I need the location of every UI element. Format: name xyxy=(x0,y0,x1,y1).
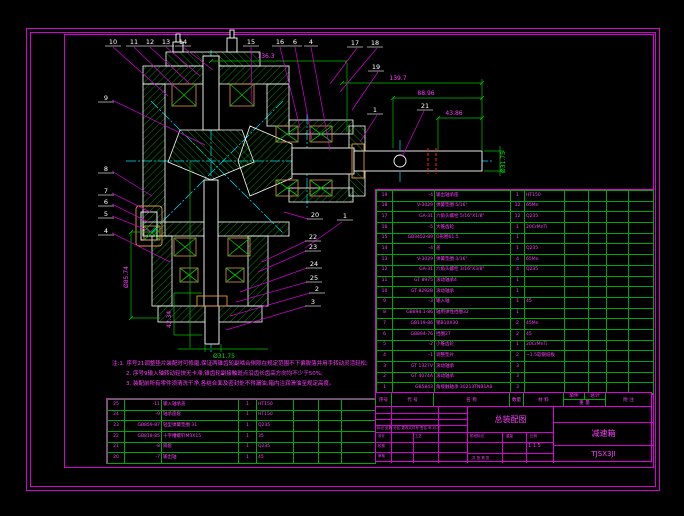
cell-name: O形圈61.5 xyxy=(435,233,511,244)
cell-weight xyxy=(342,432,376,443)
cell-material: 45Mn xyxy=(525,319,565,330)
table-row: 16-5大锥齿轮120CrMnTi xyxy=(377,223,654,234)
cell-material: Q235 xyxy=(525,212,565,223)
cell-note xyxy=(629,297,654,308)
cell-qty: 4 xyxy=(511,265,525,276)
table-row: 5-2小锥齿轮120CrMnTi xyxy=(377,340,654,351)
cell-weight xyxy=(607,191,629,202)
table-row: 10GT 8292B滚动轴承1 xyxy=(377,287,654,298)
callout: 24 xyxy=(310,260,318,268)
cell-no: 12 xyxy=(377,265,393,276)
cell-code: GB818-85 xyxy=(125,432,162,443)
cell-no: 20 xyxy=(108,453,125,464)
cell-name: 滚动轴承 xyxy=(435,372,511,383)
table-row: 14-4盖1Q235 xyxy=(377,244,654,255)
cell-total xyxy=(589,362,607,373)
cell-qty: 1 xyxy=(239,453,257,464)
cell-note xyxy=(629,351,654,362)
cell-total xyxy=(589,308,607,319)
table-row: 12GA-31六角头螺栓 3/16"X3/8"4Q235 xyxy=(377,265,654,276)
cell-qty: 1 xyxy=(511,287,525,298)
table-row: 11GT 8975滚动轴承41 xyxy=(377,276,654,287)
cad-viewport: 136.3 139.7 88.96 43.86 Ø31.75 Ø85.74 42… xyxy=(0,0,684,516)
callout: 15 xyxy=(247,38,255,46)
callout: 2 xyxy=(315,285,319,293)
cell-name: 弹簧垫圈 5/16" xyxy=(435,201,511,212)
cell-total xyxy=(589,191,607,202)
cell-material: 20CrMnTi xyxy=(525,223,565,234)
cell-name: 六角头螺栓 5/16"X1/8" xyxy=(435,212,511,223)
cell-weight xyxy=(607,255,629,266)
cell-code: GT 8975 xyxy=(393,276,435,287)
cell-total xyxy=(589,233,607,244)
cell-qty: 1 xyxy=(239,421,257,432)
table-row: 8GB894.1-86轴用弹性挡圈321 xyxy=(377,308,654,319)
cell-code: -4 xyxy=(393,244,435,255)
cell-unit xyxy=(565,372,589,383)
cell-code: GT 8292B xyxy=(393,287,435,298)
cell-unit xyxy=(565,340,589,351)
cell-material: ~1.5软钢纸板 xyxy=(525,351,565,362)
cell-material xyxy=(525,362,565,373)
cell-name: 轻型弹簧垫圈 31 xyxy=(162,421,239,432)
cell-total xyxy=(589,340,607,351)
cell-qty: 1 xyxy=(511,308,525,319)
cell-no: 21 xyxy=(108,442,125,453)
callout: 20 xyxy=(311,211,319,219)
cell-qty: 1 xyxy=(511,223,525,234)
cell-name: 十字槽螺钉M3X15 xyxy=(162,432,239,443)
cell-total xyxy=(319,453,342,464)
cell-total xyxy=(589,201,607,212)
cell-material: 45 xyxy=(525,329,565,340)
cell-unit xyxy=(294,410,319,421)
cell-unit xyxy=(565,287,589,298)
callout: 14 xyxy=(179,38,187,46)
cell-note xyxy=(629,212,654,223)
cell-qty: 2 xyxy=(511,351,525,362)
table-row: 24-9轴承座套1HT150 xyxy=(108,410,376,421)
dim-shaft-total: 139.7 xyxy=(389,75,406,82)
callout: 22 xyxy=(309,233,317,241)
parts-list-header: 序号 代 号 名 称 数量 材 料 单件 总计 重 量 附 注 xyxy=(375,392,652,407)
cell-note xyxy=(629,233,654,244)
cell-note xyxy=(629,255,654,266)
note-line: 3. 装配前所有零件须清洗干净,各结合面及密封处不得漏油,箱内注润滑油至规定高度… xyxy=(112,379,412,389)
cell-weight xyxy=(607,308,629,319)
cell-code: -8 xyxy=(125,442,162,453)
cell-unit xyxy=(565,201,589,212)
cell-material: 65Mn xyxy=(525,255,565,266)
callout: 6 xyxy=(293,38,297,46)
cell-name: 调整垫片 xyxy=(435,351,511,362)
callout: 8 xyxy=(104,165,108,173)
table-row: 19-4输出轴承座1HT150 xyxy=(377,191,654,202)
weight-label: 重量 xyxy=(506,434,513,439)
cell-unit xyxy=(294,421,319,432)
cell-code: V-3029 xyxy=(393,255,435,266)
cell-qty: 1 xyxy=(511,297,525,308)
cell-name: 输出轴承座 xyxy=(435,191,511,202)
cell-unit xyxy=(294,442,319,453)
cell-name: 滚动轴承 xyxy=(435,287,511,298)
cell-code: -1 xyxy=(393,351,435,362)
cell-material: 20CrMnTi xyxy=(525,340,565,351)
header-name: 名 称 xyxy=(434,393,510,406)
table-row: 7GB119-86销B10X30245Mn xyxy=(377,319,654,330)
cell-total xyxy=(319,421,342,432)
cell-name: 滚动轴承4 xyxy=(435,276,511,287)
cell-total xyxy=(589,244,607,255)
callout: 25 xyxy=(310,274,318,282)
cell-qty: 2 xyxy=(511,329,525,340)
cell-code: -2 xyxy=(393,340,435,351)
cell-no: 17 xyxy=(377,212,393,223)
cell-code: GB3452-89 xyxy=(393,233,435,244)
cell-note xyxy=(629,191,654,202)
cell-total xyxy=(589,276,607,287)
callout: 4 xyxy=(104,227,108,235)
technical-notes: 注:1. 序号21调整垫片装配时可修磨,保证两锥齿轮副啮合侧隙在规定范围不下偏脱… xyxy=(112,359,412,389)
title-block: 标记 处数 分区 更改文件号 签名 年.月.日 设计 校核 审核 工艺 总装配图… xyxy=(375,406,652,462)
cell-name: 滚动轴承 xyxy=(435,362,511,373)
cell-name: 小锥齿轮 xyxy=(435,340,511,351)
cell-total xyxy=(589,212,607,223)
cell-unit xyxy=(565,255,589,266)
callout: 21 xyxy=(421,102,429,110)
callout: 1 xyxy=(373,106,377,114)
cell-material: 65Mn xyxy=(525,201,565,212)
cell-unit xyxy=(565,276,589,287)
cell-unit xyxy=(565,351,589,362)
cell-weight xyxy=(607,297,629,308)
callout: 4 xyxy=(309,38,313,46)
cell-no: 5 xyxy=(377,340,393,351)
cell-name: 输入轴承盖 xyxy=(162,400,239,411)
cell-no: 11 xyxy=(377,276,393,287)
cell-material xyxy=(525,372,565,383)
cell-weight xyxy=(342,400,376,411)
scale-label: 比例 xyxy=(530,434,537,439)
parts-list-left: 25-11输入轴承盖1HT15024-9轴承座套1HT15023GB859-87… xyxy=(106,398,376,464)
cell-unit xyxy=(294,453,319,464)
cell-code: GB859-87 xyxy=(125,421,162,432)
cell-weight xyxy=(607,201,629,212)
cell-weight xyxy=(607,265,629,276)
title-cell: 总装配图 阶段标记 重量 比例 1:1.5 共 张 第 张 xyxy=(468,407,554,463)
dim-shaft-dia-right: Ø31.75 xyxy=(500,151,507,173)
callout: 19 xyxy=(372,63,380,71)
cell-weight xyxy=(607,362,629,373)
dim-flange-dia: Ø85.74 xyxy=(123,266,130,288)
cell-code: V-3029 xyxy=(393,201,435,212)
cell-weight xyxy=(607,329,629,340)
cell-total xyxy=(589,223,607,234)
drawing-title: 总装配图 xyxy=(468,407,553,432)
cell-code: -7 xyxy=(125,453,162,464)
cell-code: -9 xyxy=(125,410,162,421)
cell-material: HT150 xyxy=(257,400,294,411)
cell-no: 13 xyxy=(377,255,393,266)
header-total: 总计 xyxy=(585,393,605,399)
callout: 6 xyxy=(104,198,108,206)
cell-qty: 1 xyxy=(511,340,525,351)
cell-material: Q235 xyxy=(257,421,294,432)
cell-unit xyxy=(565,191,589,202)
cell-qty: 4 xyxy=(511,255,525,266)
callout: 10 xyxy=(109,38,117,46)
scale-value: 1:1.5 xyxy=(528,443,541,449)
vent-bolt xyxy=(227,38,237,52)
cell-total xyxy=(319,400,342,411)
product-name: 减速箱 xyxy=(554,422,653,445)
cell-material: 45 xyxy=(525,297,565,308)
cell-material xyxy=(525,308,565,319)
sheet-count: 共 张 第 张 xyxy=(472,456,489,461)
cell-total xyxy=(589,372,607,383)
cell-name: 大锥齿轮 xyxy=(435,223,511,234)
cell-material: 45 xyxy=(257,453,294,464)
cross-pin-hole xyxy=(394,155,406,167)
callout: 18 xyxy=(371,39,379,47)
cell-name: 轴承座套 xyxy=(162,410,239,421)
cell-weight xyxy=(342,421,376,432)
cell-note xyxy=(629,201,654,212)
cell-weight xyxy=(342,442,376,453)
cell-material: Q235 xyxy=(525,244,565,255)
cell-no: 8 xyxy=(377,308,393,319)
cell-code: GB119-86 xyxy=(393,319,435,330)
cell-weight xyxy=(607,223,629,234)
sign-design: 设计 xyxy=(378,434,385,439)
cell-no: 7 xyxy=(377,319,393,330)
cell-total xyxy=(589,329,607,340)
callout: 23 xyxy=(309,243,317,251)
stage-label: 阶段标记 xyxy=(470,434,484,439)
cell-total xyxy=(589,351,607,362)
cell-unit xyxy=(565,362,589,373)
cell-weight xyxy=(607,340,629,351)
cell-material: HT150 xyxy=(525,191,565,202)
cell-qty: 1 xyxy=(511,233,525,244)
cell-weight xyxy=(342,410,376,421)
cell-weight xyxy=(607,233,629,244)
table-row: 4-1调整垫片2~1.5软钢纸板 xyxy=(377,351,654,362)
cell-weight xyxy=(342,453,376,464)
dim-top-width: 136.3 xyxy=(257,53,274,60)
cell-qty: 1 xyxy=(511,276,525,287)
callout: 17 xyxy=(351,39,359,47)
cell-material: Q235 xyxy=(257,442,294,453)
note-line: 注:1. 序号21调整垫片装配时可修磨,保证两锥齿轮副啮合侧隙在规定范围不下偏脱… xyxy=(112,359,412,369)
note-line: 2. 序号9输入轴转动轻快无卡滞,锥齿轮副接触斑点沿齿长齿高方向均不少于50%; xyxy=(112,369,412,379)
callout: 12 xyxy=(146,38,154,46)
table-row: 13V-3029弹簧垫圈 3/16"465Mn xyxy=(377,255,654,266)
cell-qty: 1 xyxy=(239,442,257,453)
cell-name: 隔套 xyxy=(162,442,239,453)
cell-no: 3 xyxy=(377,362,393,373)
table-row: 9-3输入轴145 xyxy=(377,297,654,308)
table-row: 2GT 4074A滚动轴承3 xyxy=(377,372,654,383)
cell-code: -5 xyxy=(393,223,435,234)
cell-qty: 1 xyxy=(239,400,257,411)
cell-weight xyxy=(607,287,629,298)
cell-note xyxy=(629,244,654,255)
header-code: 代 号 xyxy=(392,393,434,406)
cell-weight xyxy=(607,351,629,362)
cell-no: 18 xyxy=(377,201,393,212)
cell-note xyxy=(629,340,654,351)
cell-code: GA-31 xyxy=(393,265,435,276)
cell-note xyxy=(629,265,654,276)
cell-qty: 1 xyxy=(511,244,525,255)
bevel-gears xyxy=(168,126,292,196)
revision-grid: 标记 处数 分区 更改文件号 签名 年.月.日 设计 校核 审核 工艺 xyxy=(376,407,468,463)
cell-name: 销B10X30 xyxy=(435,319,511,330)
header-qty: 数量 xyxy=(510,393,524,406)
cell-qty: 1 xyxy=(511,191,525,202)
sign-approve: 审核 xyxy=(378,454,385,459)
header-note: 附 注 xyxy=(606,393,651,406)
table-row: 21-8隔套1Q235 xyxy=(108,442,376,453)
cell-material xyxy=(525,276,565,287)
table-row: 25-11输入轴承盖1HT150 xyxy=(108,400,376,411)
cell-total xyxy=(589,255,607,266)
callout: 1 xyxy=(343,212,347,220)
dim-shaft-mid: 88.96 xyxy=(417,90,434,97)
cell-code: GT 1327V xyxy=(393,362,435,373)
header-unit: 单件 xyxy=(564,393,585,399)
cell-code: GT 4074A xyxy=(393,372,435,383)
cell-note xyxy=(629,319,654,330)
cell-unit xyxy=(294,432,319,443)
table-row: 18V-3029弹簧垫圈 5/16"1265Mn xyxy=(377,201,654,212)
table-row: 17GA-31六角头螺栓 5/16"X1/8"12Q235 xyxy=(377,212,654,223)
cell-qty: 1 xyxy=(239,410,257,421)
sign-check: 校核 xyxy=(378,444,385,449)
cell-unit xyxy=(565,233,589,244)
callout: 13 xyxy=(162,38,170,46)
cell-code: GA-31 xyxy=(393,212,435,223)
parts-list-right: 19-4输出轴承座1HT15018V-3029弹簧垫圈 5/16"1265Mn1… xyxy=(375,189,654,395)
cell-total xyxy=(589,287,607,298)
sign-process: 工艺 xyxy=(415,434,422,439)
cell-qty: 3 xyxy=(511,362,525,373)
cell-no: 4 xyxy=(377,351,393,362)
cell-unit xyxy=(565,212,589,223)
cell-total xyxy=(589,319,607,330)
cell-note xyxy=(629,362,654,373)
cell-code: GB894.1-86 xyxy=(393,308,435,319)
cell-weight xyxy=(607,319,629,330)
cell-name: 弹簧垫圈 3/16" xyxy=(435,255,511,266)
cell-qty: 12 xyxy=(511,201,525,212)
cell-no: 6 xyxy=(377,329,393,340)
cell-name: 六角头螺栓 3/16"X3/8" xyxy=(435,265,511,276)
cell-note xyxy=(629,372,654,383)
cell-qty: 12 xyxy=(511,212,525,223)
cell-no: 16 xyxy=(377,223,393,234)
cell-material xyxy=(525,233,565,244)
cell-weight xyxy=(607,244,629,255)
table-row: 15GB3452-89O形圈61.51 xyxy=(377,233,654,244)
drawing-number: TJSX3JI xyxy=(554,445,653,463)
cell-name: 盖 xyxy=(435,244,511,255)
cell-material: 35 xyxy=(257,432,294,443)
callout: 11 xyxy=(130,38,138,46)
cell-no: 23 xyxy=(108,421,125,432)
cell-name: 输出轴 xyxy=(162,453,239,464)
cell-unit xyxy=(294,400,319,411)
callout: 7 xyxy=(104,187,108,195)
cell-material: HT150 xyxy=(257,410,294,421)
dim-boss-height: 42.34 xyxy=(166,311,173,328)
cell-note xyxy=(629,223,654,234)
cell-name: 轴用弹性挡圈32 xyxy=(435,308,511,319)
table-row: 3GT 1327V滚动轴承3 xyxy=(377,362,654,373)
product-cell: 减速箱 TJSX3JI xyxy=(554,407,653,463)
cell-no: 25 xyxy=(108,400,125,411)
dim-shaft-end: 43.86 xyxy=(445,110,462,117)
callout: 9 xyxy=(104,94,108,102)
cell-no: 19 xyxy=(377,191,393,202)
cell-note xyxy=(629,276,654,287)
cell-code: -11 xyxy=(125,400,162,411)
cell-name: 挡圈27 xyxy=(435,329,511,340)
revision-labels: 标记 处数 分区 更改文件号 签名 年.月.日 xyxy=(377,426,467,431)
cell-unit xyxy=(565,319,589,330)
cell-code: GB894-76 xyxy=(393,329,435,340)
cell-total xyxy=(319,442,342,453)
table-row: 22GB818-85十字槽螺钉M3X15135 xyxy=(108,432,376,443)
header-weight-group: 单件 总计 重 量 xyxy=(564,393,606,406)
cell-qty: 2 xyxy=(511,319,525,330)
cell-total xyxy=(589,297,607,308)
callout: 3 xyxy=(311,298,315,306)
cell-unit xyxy=(565,265,589,276)
table-row: 20-7输出轴145 xyxy=(108,453,376,464)
cell-qty: 3 xyxy=(511,372,525,383)
cell-no: 9 xyxy=(377,297,393,308)
cell-code: -3 xyxy=(393,297,435,308)
cell-note xyxy=(629,287,654,298)
cell-total xyxy=(319,432,342,443)
header-material: 材 料 xyxy=(524,393,564,406)
callout: 16 xyxy=(276,38,284,46)
cell-no: 22 xyxy=(108,432,125,443)
callout: 5 xyxy=(104,210,108,218)
cell-note xyxy=(629,308,654,319)
cell-unit xyxy=(565,329,589,340)
cell-weight xyxy=(607,372,629,383)
cell-weight xyxy=(607,212,629,223)
table-row: 23GB859-87轻型弹簧垫圈 311Q235 xyxy=(108,421,376,432)
cell-no: 24 xyxy=(108,410,125,421)
cell-total xyxy=(589,265,607,276)
cell-unit xyxy=(565,223,589,234)
cell-no: 14 xyxy=(377,244,393,255)
cell-material: Q235 xyxy=(525,265,565,276)
cell-unit xyxy=(565,308,589,319)
cell-code: -4 xyxy=(393,191,435,202)
cell-material xyxy=(525,287,565,298)
cell-no: 10 xyxy=(377,287,393,298)
cell-note xyxy=(629,329,654,340)
cell-weight xyxy=(607,276,629,287)
cell-name: 输入轴 xyxy=(435,297,511,308)
header-no: 序号 xyxy=(376,393,392,406)
cell-no: 2 xyxy=(377,372,393,383)
